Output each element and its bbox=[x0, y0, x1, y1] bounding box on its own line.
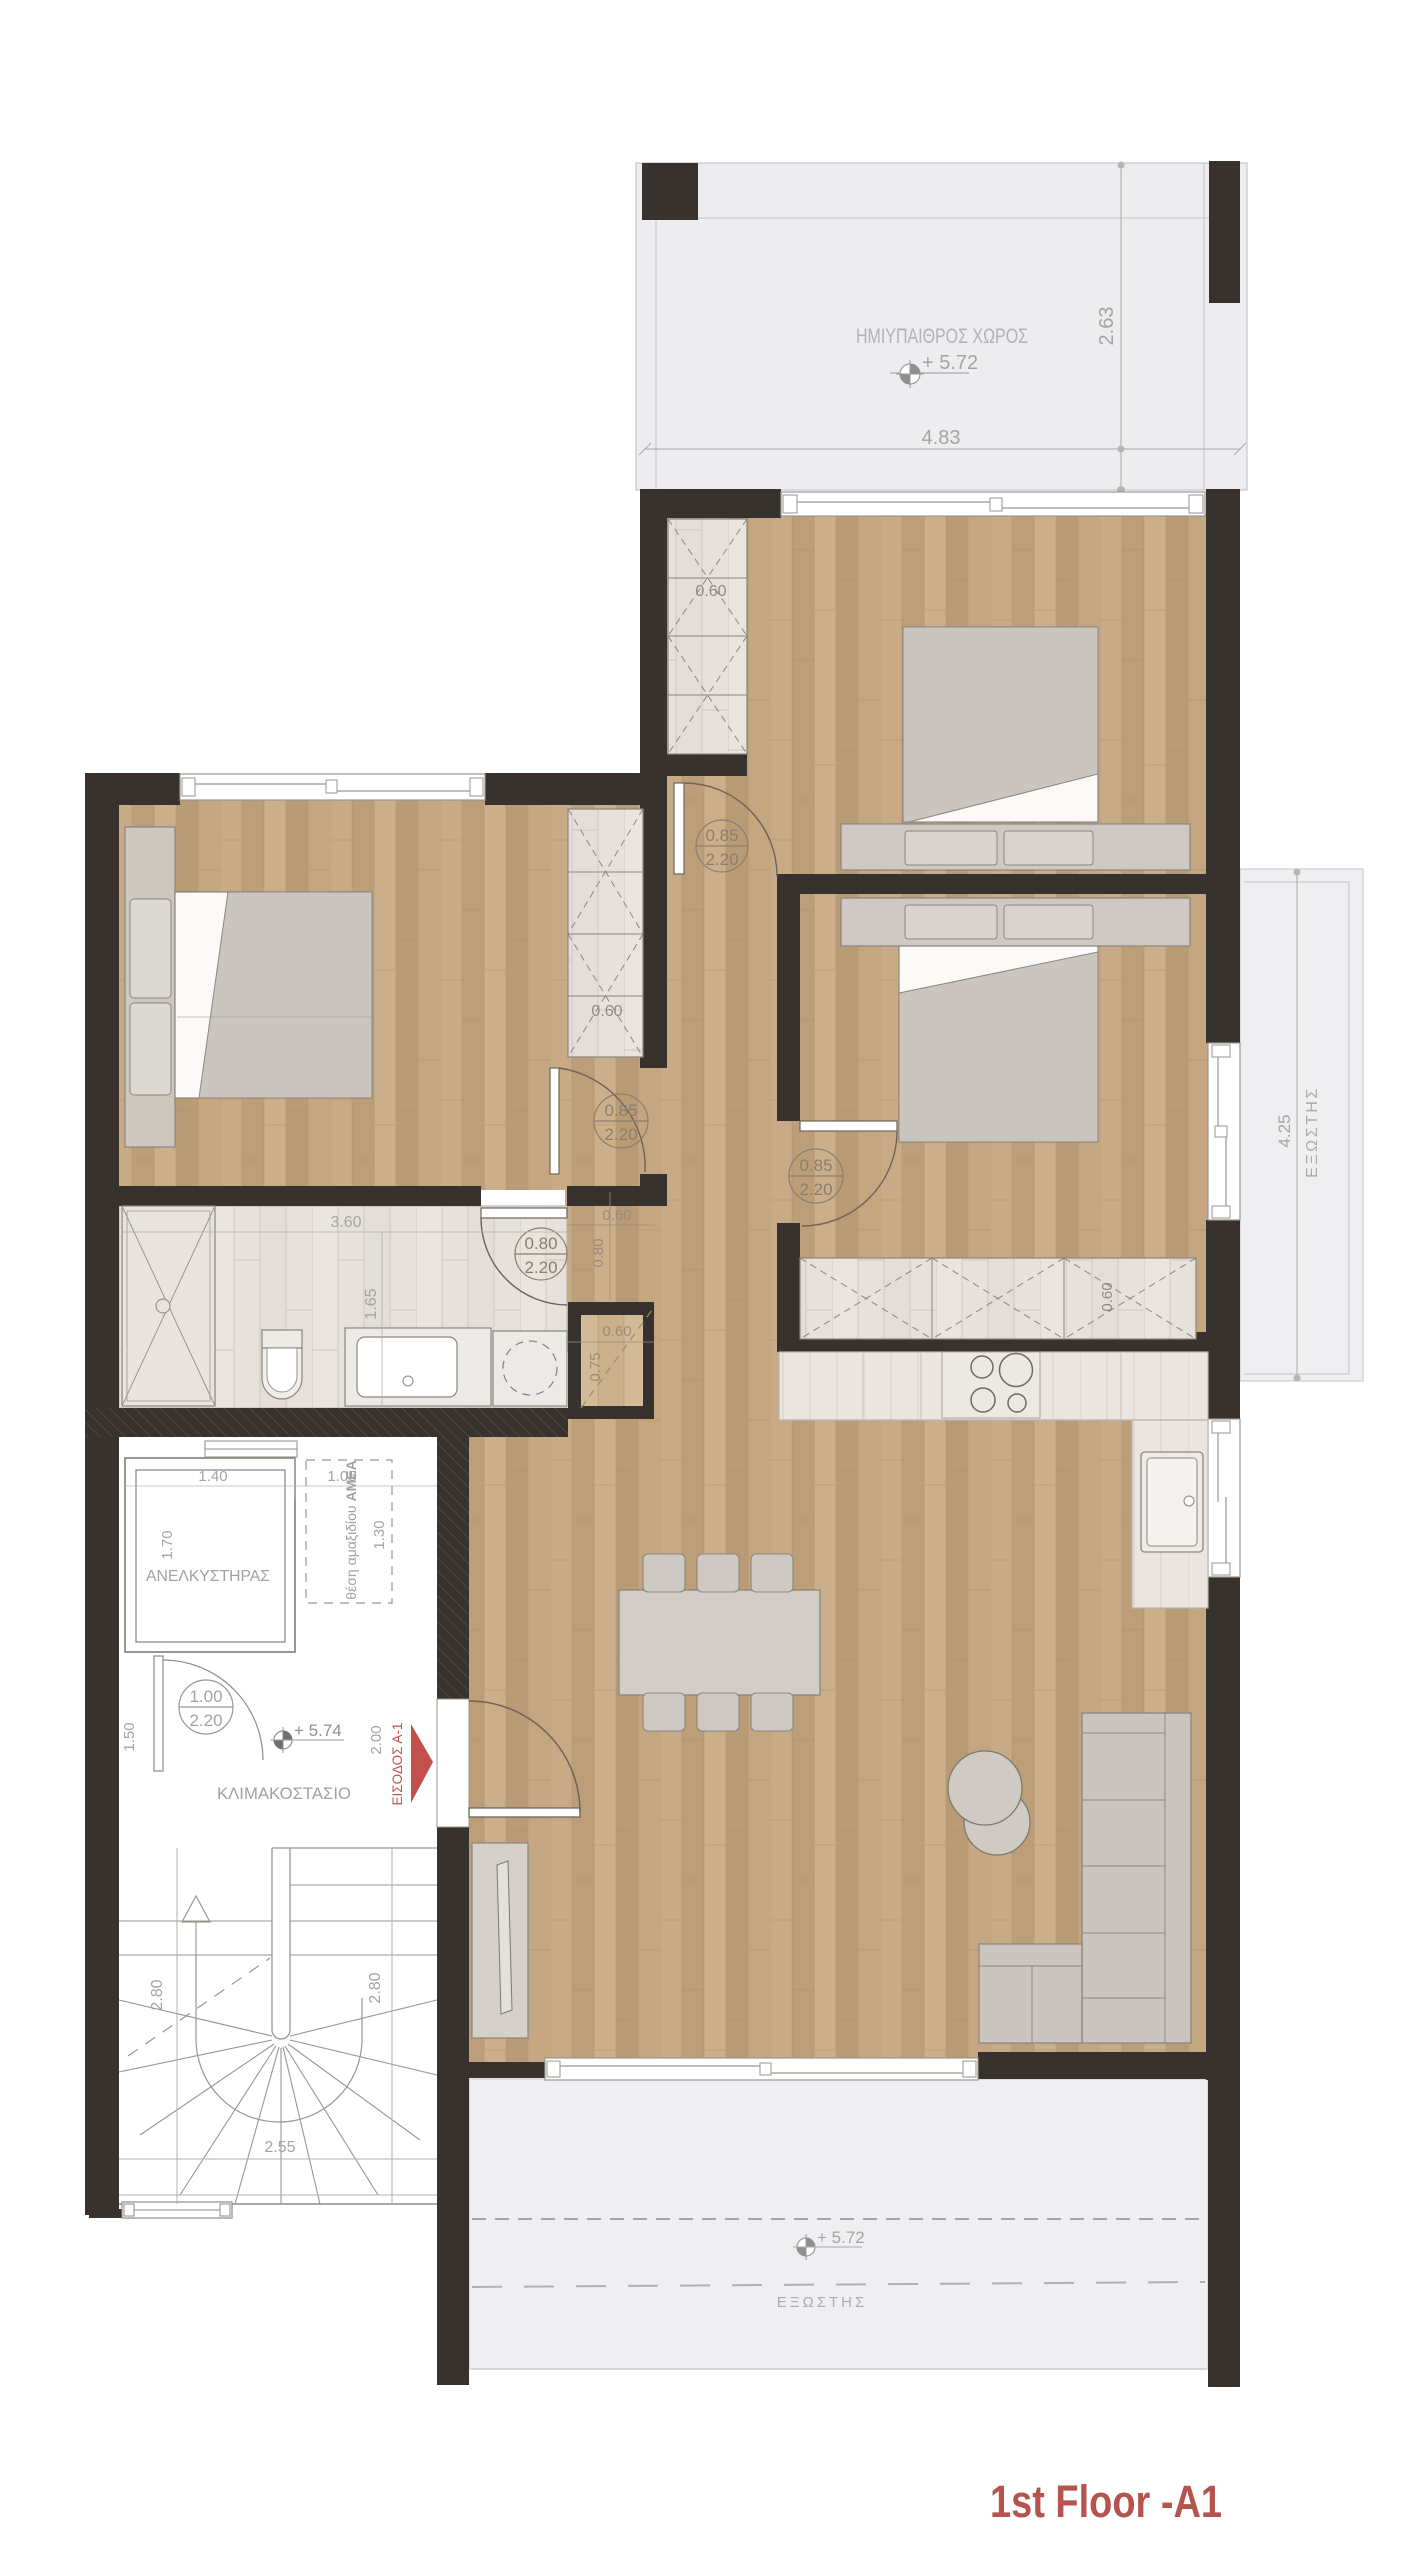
svg-text:0.60: 0.60 bbox=[602, 1323, 631, 1340]
svg-text:2.63: 2.63 bbox=[1096, 307, 1118, 346]
svg-text:2.20: 2.20 bbox=[524, 1258, 557, 1277]
svg-text:0.85: 0.85 bbox=[799, 1156, 832, 1175]
svg-text:3.60: 3.60 bbox=[330, 1214, 361, 1231]
svg-text:0.80: 0.80 bbox=[590, 1238, 607, 1267]
svg-text:0.60: 0.60 bbox=[602, 1207, 631, 1224]
svg-text:1.65: 1.65 bbox=[363, 1288, 380, 1319]
svg-text:+ 5.72: + 5.72 bbox=[922, 352, 978, 374]
svg-text:1.70: 1.70 bbox=[159, 1530, 176, 1559]
svg-text:2.20: 2.20 bbox=[799, 1180, 832, 1199]
svg-text:+ 5.74: + 5.74 bbox=[294, 1721, 342, 1740]
svg-text:0.60: 0.60 bbox=[695, 583, 726, 600]
svg-text:2.80: 2.80 bbox=[149, 1979, 166, 2010]
svg-text:1.05: 1.05 bbox=[327, 1468, 356, 1485]
svg-text:ΕΙΣΟΔΟΣ Α-1: ΕΙΣΟΔΟΣ Α-1 bbox=[390, 1723, 405, 1806]
svg-text:0.75: 0.75 bbox=[587, 1352, 604, 1381]
svg-text:1st Floor -A1: 1st Floor -A1 bbox=[990, 2476, 1222, 2527]
svg-text:ΚΛΙΜΑΚΟΣΤΑΣΙΟ: ΚΛΙΜΑΚΟΣΤΑΣΙΟ bbox=[217, 1785, 351, 1803]
svg-text:ΕΞΩΣΤΗΣ: ΕΞΩΣΤΗΣ bbox=[777, 2294, 868, 2311]
svg-text:4.83: 4.83 bbox=[922, 427, 961, 449]
svg-text:2.20: 2.20 bbox=[604, 1125, 637, 1144]
svg-text:2.80: 2.80 bbox=[367, 1972, 384, 2003]
svg-text:ΑΝΕΛΚΥΣΤΗΡΑΣ: ΑΝΕΛΚΥΣΤΗΡΑΣ bbox=[146, 1568, 270, 1585]
svg-text:0.85: 0.85 bbox=[705, 826, 738, 845]
svg-text:ΕΞΩΣΤΗΣ: ΕΞΩΣΤΗΣ bbox=[1304, 1086, 1321, 1178]
svg-text:+ 5.72: + 5.72 bbox=[817, 2228, 865, 2247]
svg-text:2.20: 2.20 bbox=[705, 850, 738, 869]
svg-text:1.00: 1.00 bbox=[189, 1687, 222, 1706]
svg-text:1.40: 1.40 bbox=[198, 1468, 227, 1485]
svg-text:0.60: 0.60 bbox=[1099, 1282, 1116, 1311]
svg-text:2.55: 2.55 bbox=[264, 2139, 295, 2156]
svg-text:0.80: 0.80 bbox=[524, 1234, 557, 1253]
svg-text:0.60: 0.60 bbox=[591, 1003, 622, 1020]
svg-text:2.20: 2.20 bbox=[189, 1711, 222, 1730]
svg-text:1.30: 1.30 bbox=[371, 1520, 388, 1549]
svg-text:1.50: 1.50 bbox=[121, 1722, 138, 1751]
svg-text:4.25: 4.25 bbox=[1275, 1114, 1294, 1147]
svg-text:ΗΜΙΥΠΑΙΘΡΟΣ ΧΩΡΟΣ: ΗΜΙΥΠΑΙΘΡΟΣ ΧΩΡΟΣ bbox=[856, 325, 1028, 348]
svg-text:2.00: 2.00 bbox=[368, 1725, 385, 1754]
svg-text:0.85: 0.85 bbox=[604, 1101, 637, 1120]
